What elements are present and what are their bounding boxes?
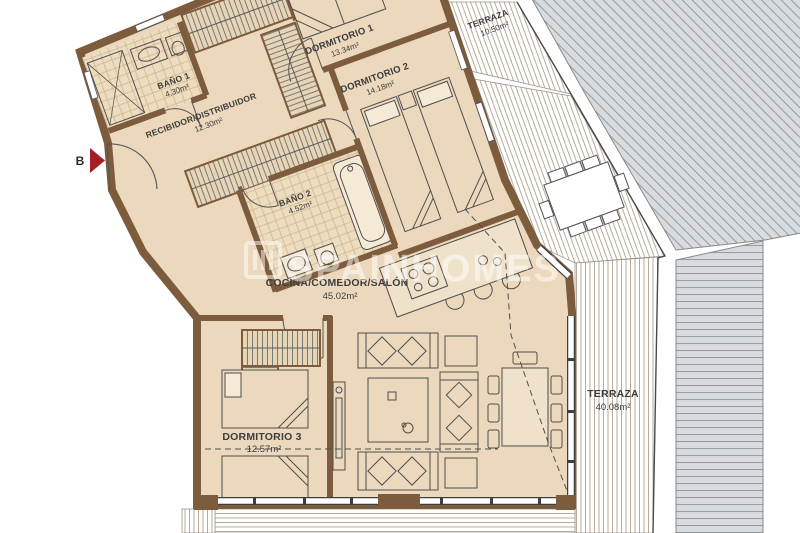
terraza2-label: TERRAZA [587,388,639,400]
neighbor-terrace-horizontal [676,241,763,533]
dormitorio3-label: DORMITORIO 3 [222,431,301,443]
entry-label: B [76,154,85,168]
entry-marker: B [76,148,105,173]
floorplan-page: BAÑO 1 4.30m² RECIBIDOR/DISTRIBUIDOR 12.… [0,0,800,533]
terraza-deck-south [182,507,575,533]
terraza2-area: 40.08m² [596,402,631,413]
watermark-text: SPAINHOMES® [288,248,572,290]
dormitorio3-area: 12.57m² [247,444,282,455]
watermark: SPAINHOMES® [246,243,572,290]
floorplan-drawing: BAÑO 1 4.30m² RECIBIDOR/DISTRIBUIDOR 12.… [0,0,800,533]
cocina-area: 45.02m² [323,291,358,302]
entry-arrow-icon [90,148,105,173]
